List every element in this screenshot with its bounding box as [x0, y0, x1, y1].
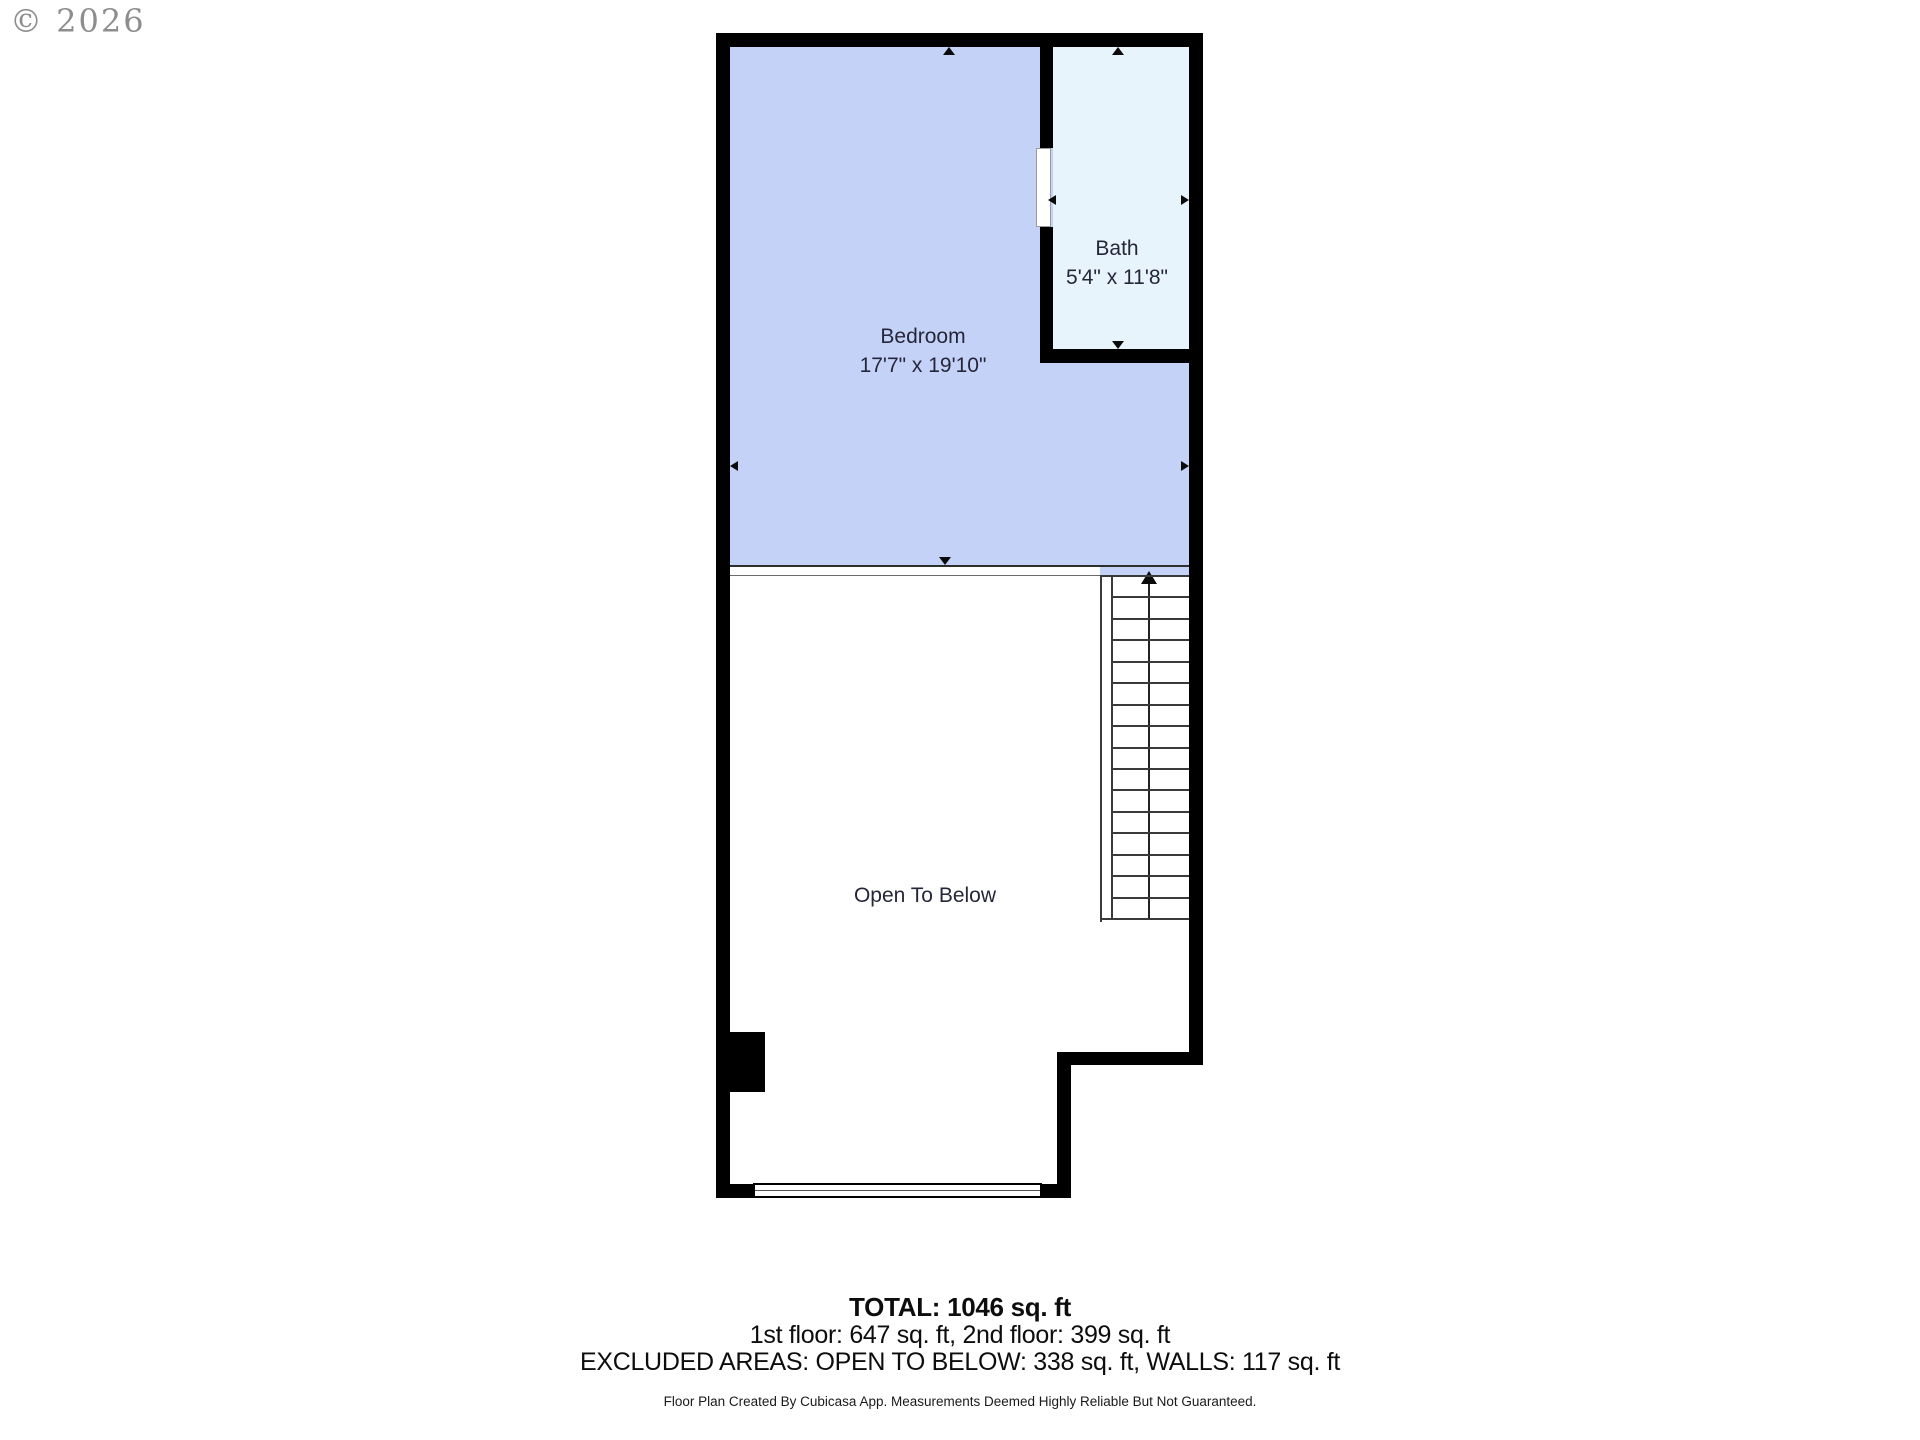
bedroom-label: Bedroom 17'7" x 19'10" — [860, 322, 987, 380]
wall-bath-bottom — [1040, 349, 1203, 363]
bath-door-leaf — [1036, 148, 1051, 227]
bath-dimensions: 5'4" x 11'8" — [1066, 263, 1168, 292]
stair-tread-line — [1111, 789, 1189, 791]
marker-arrow-right-bath-wall-icon — [1181, 195, 1189, 205]
marker-arrow-left-bedroom-wall-icon — [730, 461, 738, 471]
stair-tread-line — [1111, 704, 1189, 706]
open-to-below-label: Open To Below — [854, 881, 996, 910]
marker-arrow-down-bedroom-bottom-icon — [939, 557, 951, 565]
footer-disclaimer: Floor Plan Created By Cubicasa App. Meas… — [0, 1394, 1920, 1409]
wall-step-horizontal — [1057, 1052, 1203, 1065]
stair-direction-line — [1148, 581, 1150, 920]
stair-tread-line — [1111, 725, 1189, 727]
stair-stringer-outer — [1100, 575, 1102, 920]
summary-total: TOTAL: 1046 sq. ft — [0, 1292, 1920, 1323]
wall-right — [1189, 33, 1203, 1065]
bedroom-floor-edge-line — [730, 565, 1189, 567]
stair-up-arrow-icon — [1141, 571, 1157, 584]
bath-label: Bath 5'4" x 11'8" — [1066, 234, 1168, 292]
stair-tread-line — [1100, 918, 1189, 920]
stair-tread-line — [1111, 682, 1189, 684]
chimney-block — [730, 1032, 765, 1092]
wall-bedroom-bath-divider-lower — [1040, 227, 1053, 363]
stair-tread-line — [1111, 854, 1189, 856]
bedroom-name: Bedroom — [860, 322, 987, 351]
wall-bedroom-bath-divider-upper — [1040, 47, 1053, 148]
stair-tread-line — [1111, 661, 1189, 663]
marker-arrow-up-bedroom-top-icon — [943, 47, 955, 55]
stair-tread-line — [1111, 596, 1189, 598]
bath-door-swing-arrow-icon — [1048, 195, 1056, 205]
stair-tread-line — [1111, 832, 1189, 834]
bath-name: Bath — [1066, 234, 1168, 263]
stair-tread-line — [1111, 811, 1189, 813]
wall-left — [716, 33, 730, 1198]
stair-tread-line — [1111, 747, 1189, 749]
wall-top — [716, 33, 1203, 47]
bottom-window — [753, 1183, 1042, 1198]
summary-floors: 1st floor: 647 sq. ft, 2nd floor: 399 sq… — [0, 1321, 1920, 1350]
summary-excluded-areas: EXCLUDED AREAS: OPEN TO BELOW: 338 sq. f… — [0, 1348, 1920, 1377]
marker-arrow-up-bath-top-icon — [1112, 47, 1124, 55]
bath-floor-fill — [1053, 47, 1189, 349]
stair-tread-line — [1100, 575, 1189, 577]
open-below-top-line — [730, 575, 1102, 576]
wall-step-vertical — [1057, 1052, 1071, 1198]
stair-tread-line — [1111, 639, 1189, 641]
staircase — [1100, 575, 1189, 920]
stair-tread-line — [1111, 768, 1189, 770]
bottom-window-pane-line — [755, 1190, 1040, 1191]
stair-tread-line — [1111, 875, 1189, 877]
marker-arrow-down-bath-bottom-icon — [1112, 341, 1124, 349]
stair-tread-line — [1111, 897, 1189, 899]
floorplan: Bedroom 17'7" x 19'10" Bath 5'4" x 11'8"… — [0, 0, 1920, 1440]
floorplan-page: © 2026 — [0, 0, 1920, 1440]
marker-arrow-right-bedroom-wall-icon — [1181, 461, 1189, 471]
bedroom-dimensions: 17'7" x 19'10" — [860, 351, 987, 380]
stair-tread-line — [1111, 618, 1189, 620]
